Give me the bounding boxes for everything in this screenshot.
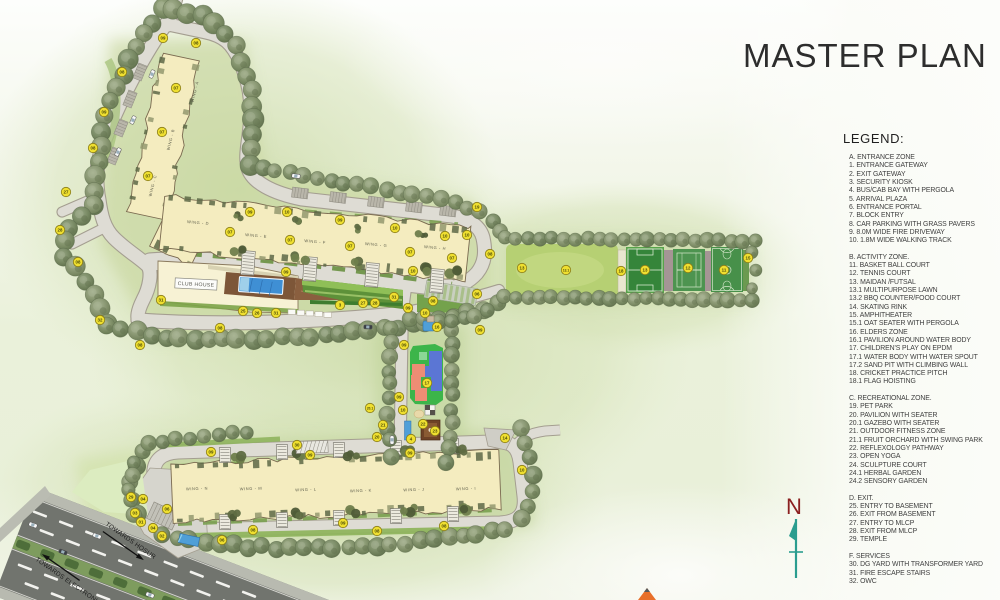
svg-text:07: 07 (348, 244, 353, 249)
svg-text:WING - N: WING - N (186, 486, 208, 492)
svg-text:07: 07 (288, 238, 293, 243)
svg-text:29: 29 (129, 495, 134, 500)
svg-text:N: N (786, 494, 802, 519)
svg-text:07: 07 (160, 130, 165, 135)
svg-text:09: 09 (341, 521, 346, 526)
svg-text:10: 10 (285, 210, 290, 215)
svg-text:09: 09 (102, 110, 107, 115)
svg-text:10: 10 (393, 226, 398, 231)
svg-text:08: 08 (218, 326, 223, 331)
svg-text:27: 27 (64, 190, 69, 195)
svg-text:09: 09 (406, 306, 411, 311)
svg-text:09: 09 (209, 450, 214, 455)
svg-text:23: 23 (433, 429, 438, 434)
svg-text:08: 08 (138, 343, 143, 348)
svg-text:10: 10 (443, 234, 448, 239)
svg-text:28: 28 (373, 301, 378, 306)
svg-text:07: 07 (450, 256, 455, 261)
svg-text:WING - I: WING - I (456, 486, 477, 492)
svg-text:10: 10 (465, 233, 470, 238)
svg-text:WING - L: WING - L (295, 487, 317, 493)
svg-text:30: 30 (295, 443, 300, 448)
svg-text:21: 21 (381, 423, 386, 428)
svg-text:13: 13 (520, 266, 525, 271)
svg-text:20.1: 20.1 (367, 407, 373, 411)
svg-text:07: 07 (174, 86, 179, 91)
svg-text:16: 16 (435, 325, 440, 330)
svg-text:08: 08 (91, 146, 96, 151)
svg-text:06: 06 (220, 538, 225, 543)
svg-text:09: 09 (397, 395, 402, 400)
svg-text:08: 08 (251, 528, 256, 533)
svg-text:08: 08 (76, 260, 81, 265)
svg-text:22: 22 (421, 422, 426, 427)
svg-text:09: 09 (402, 343, 407, 348)
svg-text:15: 15 (746, 256, 751, 261)
svg-text:31: 31 (274, 311, 279, 316)
svg-text:10: 10 (401, 408, 406, 413)
svg-text:08: 08 (194, 41, 199, 46)
svg-text:13.1: 13.1 (563, 269, 569, 273)
svg-text:09: 09 (284, 270, 289, 275)
svg-text:12: 12 (686, 266, 691, 271)
svg-text:01: 01 (139, 520, 144, 525)
svg-text:02: 02 (160, 534, 165, 539)
svg-text:32: 32 (98, 318, 103, 323)
svg-text:28: 28 (58, 228, 63, 233)
svg-text:07: 07 (408, 250, 413, 255)
svg-text:04: 04 (141, 497, 146, 502)
svg-text:27: 27 (361, 301, 366, 306)
svg-text:26: 26 (255, 311, 260, 316)
svg-text:09: 09 (478, 328, 483, 333)
svg-text:04: 04 (151, 526, 156, 531)
svg-text:06: 06 (475, 292, 480, 297)
svg-text:09: 09 (338, 218, 343, 223)
svg-text:09: 09 (161, 36, 166, 41)
svg-text:09: 09 (408, 451, 413, 456)
svg-text:17: 17 (425, 381, 430, 386)
svg-text:08: 08 (431, 299, 436, 304)
svg-text:18: 18 (619, 269, 624, 274)
svg-text:11: 11 (722, 268, 727, 273)
svg-text:07: 07 (228, 230, 233, 235)
svg-text:06: 06 (165, 507, 170, 512)
svg-text:08: 08 (375, 529, 380, 534)
svg-text:25: 25 (241, 309, 246, 314)
svg-text:19: 19 (475, 205, 480, 210)
svg-text:03: 03 (133, 511, 138, 516)
svg-text:07: 07 (146, 174, 151, 179)
svg-text:WING - M: WING - M (240, 486, 263, 492)
svg-text:10: 10 (423, 311, 428, 316)
svg-text:31: 31 (159, 298, 164, 303)
svg-text:WING - J: WING - J (403, 487, 424, 493)
svg-text:20: 20 (375, 435, 380, 440)
svg-text:31: 31 (392, 295, 397, 300)
svg-text:WING - K: WING - K (350, 488, 372, 494)
svg-text:08: 08 (120, 70, 125, 75)
svg-text:09: 09 (308, 453, 313, 458)
svg-text:13: 13 (643, 268, 648, 273)
svg-text:10: 10 (520, 468, 525, 473)
svg-text:09: 09 (248, 210, 253, 215)
svg-text:08: 08 (488, 252, 493, 257)
svg-text:14: 14 (503, 436, 508, 441)
svg-text:08: 08 (442, 524, 447, 529)
svg-text:10: 10 (411, 269, 416, 274)
